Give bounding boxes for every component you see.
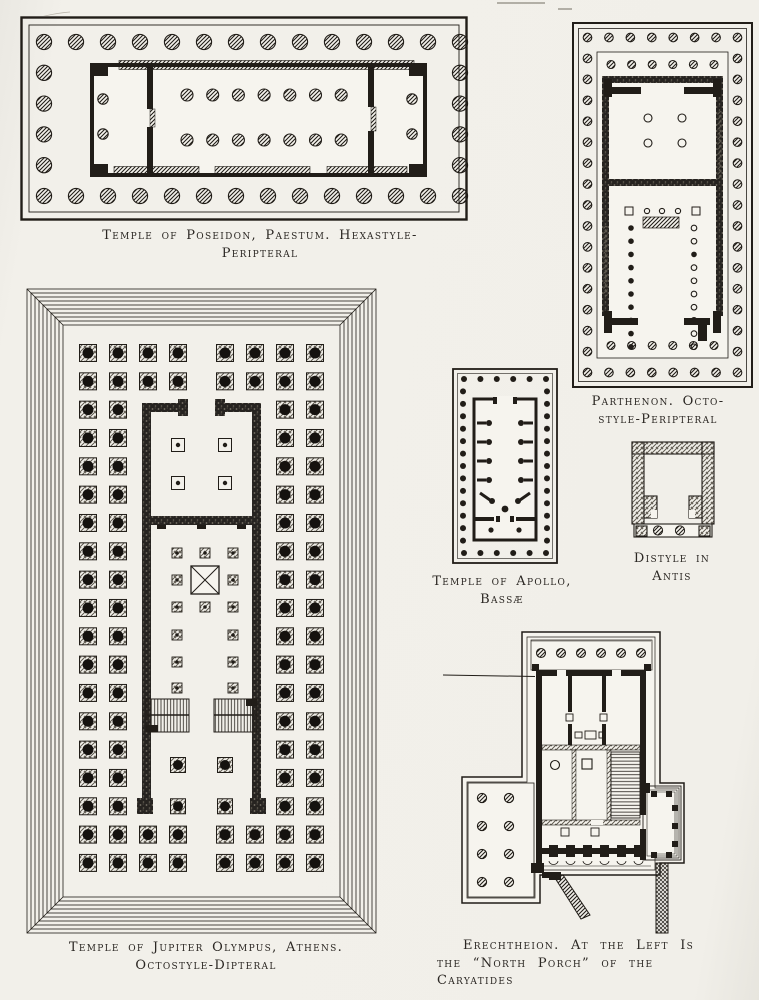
poseidon-plan-figure	[19, 15, 469, 223]
apollo-plan-figure	[451, 367, 559, 565]
jupiter-plan-figure	[25, 287, 378, 935]
caption-line: Parthenon. Octo-	[556, 393, 759, 411]
distyle-plan-drawing	[627, 438, 719, 542]
caption-line: Distyle in	[604, 550, 740, 568]
apollo-plan-drawing	[451, 367, 559, 565]
caption-line: Erechtheion. At the Left Is	[437, 937, 742, 955]
caption-line: the “North Porch” of the	[437, 955, 742, 973]
caption-line: Octostyle-Dipteral	[8, 957, 404, 975]
caption-line: Peripteral	[55, 245, 465, 263]
apollo-caption: Temple of Apollo, Bassæ	[412, 573, 592, 608]
caption-line: Temple of Poseidon, Paestum. Hexastyle-	[55, 227, 465, 245]
caption-line: Antis	[604, 568, 740, 586]
distyle-plan-figure	[627, 438, 719, 542]
caption-line: Bassæ	[412, 591, 592, 609]
jupiter-plan-drawing	[25, 287, 378, 935]
poseidon-caption: Temple of Poseidon, Paestum. Hexastyle- …	[55, 227, 465, 262]
book-page: Temple of Poseidon, Paestum. Hexastyle- …	[0, 0, 759, 1000]
caption-line: style-Peripteral	[556, 411, 759, 429]
erechtheion-plan-drawing	[441, 620, 747, 938]
poseidon-plan-drawing	[19, 15, 469, 223]
jupiter-caption: Temple of Jupiter Olympus, Athens. Octos…	[8, 939, 404, 974]
erechtheion-plan-figure	[441, 620, 747, 938]
caption-line: Temple of Jupiter Olympus, Athens.	[8, 939, 404, 957]
caption-line: Temple of Apollo,	[412, 573, 592, 591]
parthenon-plan-figure	[571, 21, 754, 389]
distyle-caption: Distyle in Antis	[604, 550, 740, 585]
parthenon-caption: Parthenon. Octo- style-Peripteral	[556, 393, 759, 428]
caption-line: Caryatides	[437, 972, 742, 990]
erechtheion-caption: Erechtheion. At the Left Is the “North P…	[437, 937, 742, 990]
scan-artifact	[0, 0, 759, 16]
parthenon-plan-drawing	[571, 21, 754, 389]
